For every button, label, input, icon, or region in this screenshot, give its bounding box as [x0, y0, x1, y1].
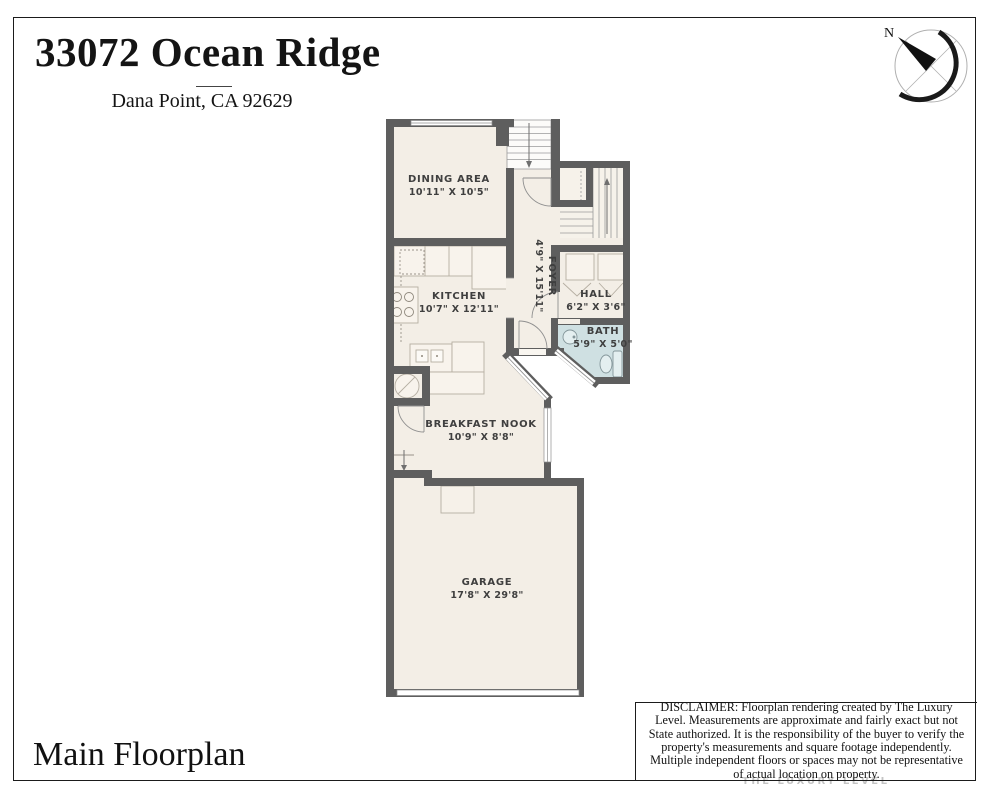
floorplan-page: 33072 Ocean Ridge Dana Point, CA 92629 N [0, 0, 990, 794]
disclaimer-text: DISCLAIMER: Floorplan rendering created … [636, 699, 977, 786]
floorplan-svg [0, 0, 990, 794]
peninsula-counter [428, 372, 484, 394]
room-label-foyer: FOYER 4'9" X 15'11" [533, 239, 557, 312]
room-label-dining: DINING AREA 10'11" X 10'5" [408, 174, 490, 198]
staircase-down [507, 120, 551, 169]
toilet-tank [613, 351, 622, 377]
garage-door [397, 690, 579, 696]
room-label-bath: BATH 5'9" X 5'0" [573, 326, 632, 350]
compass-icon [895, 30, 967, 102]
kitchen-island [452, 342, 484, 372]
water-heater [395, 374, 419, 398]
room-label-nook: BREAKFAST NOOK 10'9" X 8'8" [425, 419, 537, 443]
room-label-garage: GARAGE 17'8" X 29'8" [450, 577, 523, 601]
disclaimer-box: DISCLAIMER: Floorplan rendering created … [635, 702, 977, 781]
room-label-kitchen: KITCHEN 10'7" X 12'11" [419, 291, 499, 315]
floorplan-level-title: Main Floorplan [33, 736, 245, 774]
compass-needle [898, 37, 936, 71]
garage-platform [441, 486, 474, 513]
toilet-bowl [600, 355, 612, 373]
room-label-hall: HALL 6'2" X 3'6" [566, 289, 625, 313]
